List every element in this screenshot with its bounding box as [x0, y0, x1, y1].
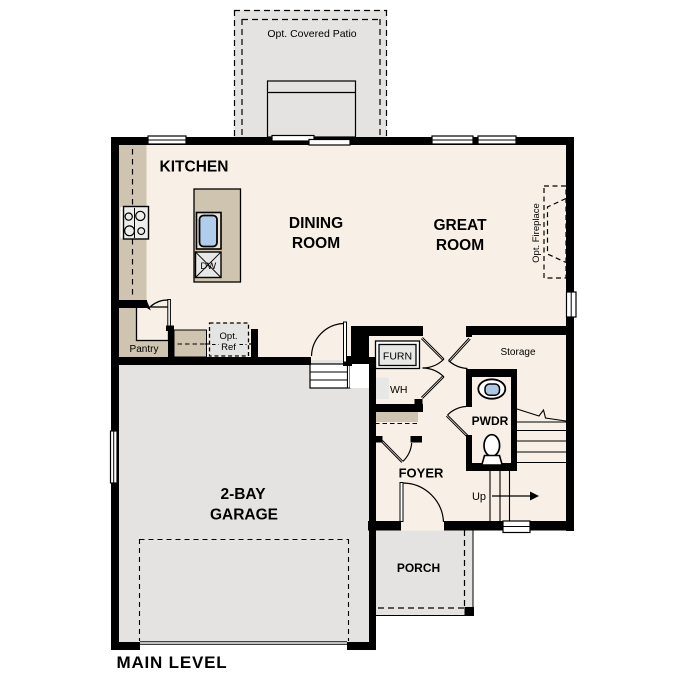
svg-text:GARAGE: GARAGE [210, 507, 278, 524]
svg-text:Ref: Ref [221, 342, 236, 353]
svg-text:Opt.: Opt. [220, 331, 238, 342]
svg-text:Storage: Storage [500, 347, 535, 358]
svg-text:Opt. Fireplace: Opt. Fireplace [531, 203, 542, 263]
svg-text:KITCHEN: KITCHEN [160, 159, 229, 176]
svg-text:Up: Up [472, 491, 486, 503]
svg-text:WH: WH [390, 384, 408, 396]
svg-text:ROOM: ROOM [292, 235, 340, 252]
svg-text:PWDR: PWDR [472, 414, 509, 428]
svg-text:2-BAY: 2-BAY [220, 486, 266, 503]
svg-text:Opt. Covered Patio: Opt. Covered Patio [267, 28, 356, 40]
svg-text:PORCH: PORCH [397, 561, 440, 575]
svg-text:MAIN LEVEL: MAIN LEVEL [117, 653, 228, 672]
svg-text:FURN: FURN [383, 351, 412, 363]
svg-text:GREAT: GREAT [433, 217, 487, 234]
svg-text:ROOM: ROOM [436, 237, 484, 254]
svg-text:FOYER: FOYER [399, 466, 444, 481]
svg-text:DINING: DINING [289, 215, 343, 232]
svg-text:DW: DW [200, 261, 216, 272]
svg-text:Pantry: Pantry [130, 344, 159, 355]
